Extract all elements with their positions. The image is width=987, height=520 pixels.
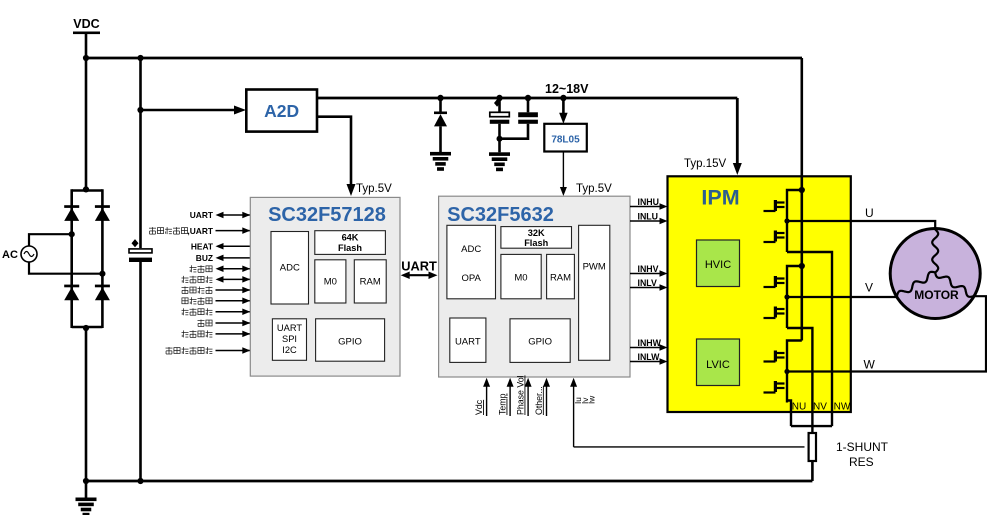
svg-text:IPM: IPM — [701, 186, 739, 210]
svg-text:Other...: Other... — [534, 386, 544, 415]
svg-text:RES: RES — [849, 455, 874, 469]
svg-text:UART: UART — [455, 337, 481, 348]
svg-text:OPA: OPA — [462, 273, 482, 284]
svg-text:M0: M0 — [324, 277, 337, 288]
svg-text:PWM: PWM — [583, 262, 606, 273]
svg-text:ADC: ADC — [280, 263, 300, 274]
svg-text:I2C: I2C — [282, 345, 297, 355]
svg-text:ADC: ADC — [461, 244, 481, 255]
svg-text:78L05: 78L05 — [551, 135, 580, 146]
svg-text:NV: NV — [813, 402, 827, 413]
svg-text:32K: 32K — [528, 228, 545, 238]
svg-text:UART: UART — [277, 323, 302, 333]
svg-text:SC32F5632: SC32F5632 — [447, 204, 554, 226]
svg-text:LVIC: LVIC — [706, 359, 730, 371]
svg-text:GPIO: GPIO — [338, 337, 362, 348]
svg-text:Flash: Flash — [338, 243, 362, 253]
svg-text:INHW: INHW — [638, 338, 662, 348]
svg-text:Iw: Iw — [587, 395, 597, 404]
svg-text:INLW: INLW — [638, 352, 661, 362]
svg-text:HEAT: HEAT — [191, 241, 214, 251]
svg-text:INLV: INLV — [638, 278, 658, 288]
svg-text:BUZ: BUZ — [196, 253, 213, 263]
svg-text:12~18V: 12~18V — [545, 82, 589, 96]
svg-text:Temp: Temp — [498, 393, 508, 415]
svg-text:SPI: SPI — [282, 334, 297, 344]
svg-text:Typ.5V: Typ.5V — [356, 183, 392, 195]
svg-text:Phase Vol: Phase Vol — [516, 375, 526, 415]
svg-text:V: V — [865, 281, 873, 295]
svg-text:GPIO: GPIO — [528, 337, 552, 348]
svg-text:MOTOR: MOTOR — [914, 288, 959, 302]
svg-text:VDC: VDC — [73, 17, 99, 31]
svg-text:NW: NW — [834, 402, 851, 413]
svg-text:U: U — [865, 206, 874, 220]
svg-text:Flash: Flash — [524, 238, 548, 248]
svg-text:W: W — [864, 358, 876, 372]
svg-text:RAM: RAM — [550, 273, 571, 284]
svg-text:INLU: INLU — [638, 212, 659, 222]
svg-text:SC32F57128: SC32F57128 — [268, 204, 386, 226]
svg-text:Typ.5V: Typ.5V — [576, 183, 612, 195]
svg-text:INHV: INHV — [638, 264, 659, 274]
svg-text:A2D: A2D — [264, 101, 299, 121]
svg-text:RAM: RAM — [360, 277, 381, 288]
svg-text:1-SHUNT: 1-SHUNT — [836, 440, 889, 454]
svg-text:NU: NU — [792, 402, 806, 413]
svg-text:64K: 64K — [342, 233, 359, 243]
svg-text:,UART: ,UART — [187, 226, 213, 236]
svg-text:UART: UART — [190, 210, 214, 220]
svg-text:HVIC: HVIC — [705, 259, 731, 271]
svg-text:Vdc: Vdc — [474, 399, 484, 415]
svg-text:AC: AC — [2, 249, 18, 261]
svg-text:INHU: INHU — [638, 197, 660, 207]
svg-text:UART: UART — [401, 259, 437, 274]
svg-text:M0: M0 — [514, 273, 527, 284]
svg-text:Typ.15V: Typ.15V — [684, 158, 727, 170]
